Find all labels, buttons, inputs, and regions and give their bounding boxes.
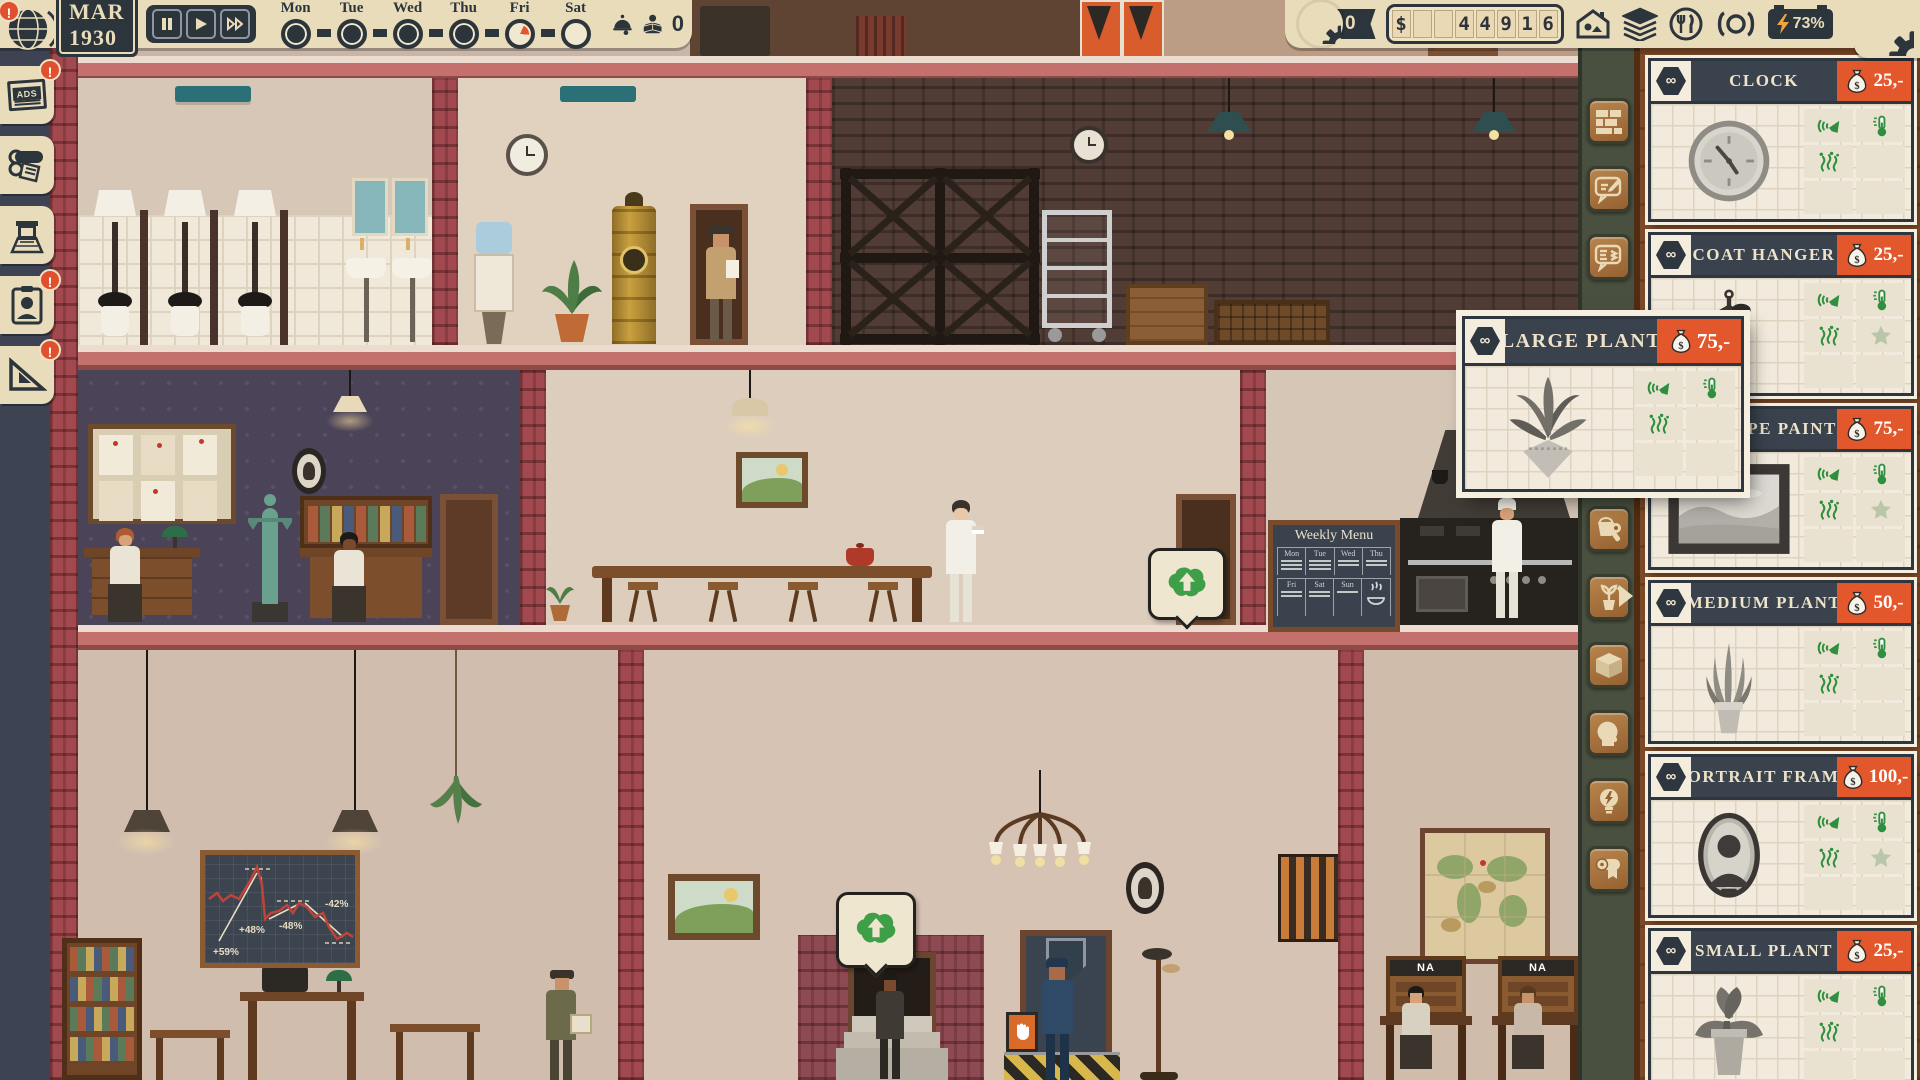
globe-widget[interactable]: ! [2, 2, 54, 54]
temperature-attribute [1856, 109, 1905, 142]
money-cell [1413, 10, 1432, 38]
day-wed[interactable]: Wed [380, 0, 436, 49]
svg-text:-42%: -42% [325, 899, 348, 910]
star-attribute [1856, 145, 1905, 178]
svg-text:+48%: +48% [239, 925, 265, 936]
popup-title: LARGE PLANT [1505, 319, 1657, 363]
left-brick-wall [50, 0, 78, 1080]
money-cell: 4 [1455, 10, 1474, 38]
toolbar-button-storage[interactable] [1587, 642, 1631, 688]
column [432, 78, 458, 345]
sink-leg [364, 278, 369, 342]
build-toolbar [1578, 48, 1634, 1080]
item-price: $ 75,- [1837, 409, 1911, 449]
popup-image-large-plant [1473, 370, 1623, 476]
bathroom-ceiling-lamp[interactable] [175, 86, 251, 102]
column [806, 78, 832, 345]
toilet-unit[interactable] [92, 190, 138, 345]
office-door[interactable] [440, 494, 498, 625]
svg-text:+59%: +59% [213, 947, 239, 958]
justice-statue[interactable] [248, 486, 292, 622]
hand-icon [1014, 1022, 1030, 1042]
pendant-lamp[interactable] [1470, 78, 1518, 140]
stool[interactable] [788, 582, 818, 622]
item-image-medium-plant [1659, 630, 1799, 736]
money-bag-icon: $ [1844, 589, 1870, 617]
temperature-attribute [1856, 457, 1905, 490]
wooden-crate[interactable] [1126, 284, 1208, 345]
coat-stand[interactable] [1136, 948, 1180, 1080]
item-price: $ 50,- [1837, 583, 1911, 623]
smell-attribute [1804, 319, 1853, 352]
noise-attribute [1804, 805, 1853, 838]
day-mon[interactable]: Mon [268, 0, 324, 49]
stool[interactable] [628, 582, 658, 622]
item-popup-large-plant[interactable]: ∞ LARGE PLANT $ 75,- [1462, 316, 1744, 492]
banker-lamp [162, 526, 190, 548]
oval-portrait[interactable] [292, 448, 326, 494]
thought-bubble-skill[interactable] [1148, 548, 1226, 620]
svg-text:$: $ [1678, 341, 1683, 352]
sidebar-tab-printing-press[interactable] [0, 136, 54, 194]
wall-clock[interactable] [506, 134, 548, 176]
oval-portrait[interactable] [1126, 862, 1164, 914]
shop-item-portrait-frame[interactable]: ∞ PORTRAIT FRAME $ 100,- [1648, 754, 1914, 918]
smell-attribute [1634, 407, 1683, 440]
subscription-gear-icon[interactable] [1299, 2, 1343, 46]
money-cell: 6 [1539, 10, 1558, 38]
empty-attribute-slot [1804, 355, 1853, 388]
top-hud-right: 0 $ 4 4 9 1 6 [1285, 0, 1860, 48]
smell-attribute [1804, 145, 1853, 178]
noise-attribute [1804, 457, 1853, 490]
dome-lamp[interactable] [330, 650, 380, 846]
money-cell: 9 [1497, 10, 1516, 38]
floor-separator-1 [78, 345, 1580, 370]
staff-clipboard-icon [10, 285, 44, 325]
empty-attribute-slot [1686, 443, 1735, 476]
bucket-wrench-icon [1594, 514, 1624, 544]
date-display: MAR 1930 [56, 0, 138, 57]
day-progress-dot [337, 19, 367, 49]
item-title: PORTRAIT FRAME [1691, 757, 1837, 797]
money-cell [1434, 10, 1453, 38]
game-screen: Weekly Menu Mon Tue Wed Thu Fri Sat Sun [0, 0, 1920, 1080]
dome-lamp[interactable] [122, 650, 172, 846]
stock-badge: ∞ [1651, 235, 1691, 275]
settings-gear-icon[interactable] [1860, 2, 1914, 56]
phone-operator[interactable] [1398, 986, 1438, 1076]
day-sat[interactable]: Sat [548, 0, 604, 49]
soup-icon [1362, 578, 1391, 616]
noise-attribute [1804, 631, 1853, 664]
playback-controls [146, 5, 256, 43]
svg-text:$: $ [1855, 429, 1860, 440]
toolbar-button-decorations[interactable] [1587, 574, 1631, 620]
empty-attribute-slot [1856, 181, 1905, 214]
chef[interactable] [1488, 498, 1528, 620]
temperature-attribute [1856, 979, 1905, 1012]
toolbar-button-maintenance[interactable] [1587, 506, 1631, 552]
empty-attribute-slot [1804, 877, 1853, 910]
thought-bubble-skill[interactable] [836, 892, 916, 968]
money-bag-icon: $ [1844, 937, 1870, 965]
bricks-icon [1594, 106, 1624, 136]
sidebar-tab-ads[interactable]: ADS ! [0, 66, 54, 124]
star-attribute [1686, 407, 1735, 440]
empty-attribute-slot [1856, 1051, 1905, 1080]
noise-attribute [1804, 109, 1853, 142]
set-square-icon [7, 357, 47, 393]
water-cooler[interactable] [472, 222, 516, 344]
potted-plant[interactable] [540, 256, 604, 346]
toilet-unit[interactable] [232, 190, 278, 345]
warehouse-shelving[interactable] [840, 168, 1040, 345]
stock-badge: ∞ [1651, 931, 1691, 971]
svg-text:$: $ [1855, 81, 1860, 92]
smell-attribute [1804, 493, 1853, 526]
star-attribute [1856, 493, 1905, 526]
noise-attribute [1804, 979, 1853, 1012]
toolbar-button-paper-roll[interactable] [1587, 846, 1631, 892]
poster-right[interactable] [1122, 0, 1164, 58]
week-tracker: Mon Tue Wed Thu Fri Sat [268, 0, 604, 49]
item-price: $ 100,- [1837, 757, 1911, 797]
brain-up-icon [1164, 563, 1210, 605]
toolbar-button-staff[interactable] [1587, 710, 1631, 756]
day-tue[interactable]: Tue [324, 0, 380, 49]
money-bag-icon: $ [1844, 67, 1870, 95]
printing-press-icon [7, 147, 47, 183]
phone-desk-label: NA [1529, 962, 1547, 974]
cork-board[interactable] [88, 424, 236, 524]
decoration-shop-panel: ∞ CLOCK $ 25,- [1634, 48, 1920, 1080]
svg-text:$: $ [1850, 777, 1855, 788]
bathroom-mirror[interactable] [352, 178, 388, 236]
paper-roll-icon [1594, 854, 1624, 884]
day-progress-dot [281, 19, 311, 49]
bookshelf[interactable] [62, 938, 142, 1080]
settings-corner [1854, 0, 1920, 58]
phone-operator[interactable] [1510, 986, 1550, 1076]
noise-attribute [1804, 283, 1853, 316]
hanging-plant[interactable] [428, 650, 484, 880]
alert-badge: ! [39, 269, 61, 291]
poster-left[interactable] [1080, 0, 1122, 58]
lobby-attendant[interactable] [868, 972, 912, 1080]
fast-forward-button[interactable] [220, 9, 250, 39]
stock-badge: ∞ [1651, 61, 1691, 101]
day-progress-dot [449, 19, 479, 49]
popup-price: $ 75,- [1657, 319, 1741, 363]
candle[interactable] [360, 238, 364, 250]
shop-item-clock[interactable]: ∞ CLOCK $ 25,- [1648, 58, 1914, 222]
noise-attribute [1634, 371, 1683, 404]
item-price: $ 25,- [1837, 931, 1911, 971]
toolbar-button-write-article[interactable] [1587, 166, 1631, 212]
shop-item-medium-plant[interactable]: ∞ MEDIUM PLANT $ 50,- [1648, 580, 1914, 744]
temperature-attribute [1686, 371, 1735, 404]
bulb-bolt-icon [1594, 786, 1624, 816]
toolbar-button-article-queue[interactable] [1587, 234, 1631, 280]
money-cell: 1 [1518, 10, 1537, 38]
hanging-pot[interactable] [1432, 470, 1448, 484]
stool[interactable] [708, 582, 738, 622]
money-bag-icon: $ [1668, 327, 1694, 355]
pallet-mesh[interactable] [1214, 300, 1330, 345]
wooden-table[interactable] [390, 1024, 480, 1080]
weekly-menu-row: Fri Sat Sun [1277, 578, 1391, 616]
sink[interactable] [346, 258, 386, 278]
empty-attribute-slot [1856, 703, 1905, 736]
money-cell: 4 [1476, 10, 1495, 38]
smell-attribute [1804, 841, 1853, 874]
smell-attribute [1804, 667, 1853, 700]
delivery-person[interactable] [540, 970, 584, 1080]
alert-badge: ! [39, 339, 61, 361]
smell-attribute [1804, 1015, 1853, 1048]
article-queue-icon [1594, 242, 1624, 272]
column [1240, 370, 1266, 625]
waiter-in-white[interactable] [940, 500, 982, 622]
brain-up-icon [852, 908, 900, 952]
money-bag-icon: $ [1840, 763, 1866, 791]
office-worker[interactable] [106, 528, 150, 622]
column [520, 370, 546, 625]
food-icon[interactable] [1668, 6, 1704, 42]
golden-machine[interactable] [612, 206, 656, 344]
world-map[interactable] [1420, 828, 1550, 964]
sink[interactable] [392, 258, 432, 278]
day-thu[interactable]: Thu [436, 0, 492, 49]
item-price: $ 25,- [1837, 61, 1911, 101]
readers-count: 0 [672, 11, 684, 37]
stock-badge: ∞ [1465, 319, 1505, 363]
landscape-painting[interactable] [736, 452, 808, 508]
stall-partition[interactable] [280, 210, 288, 345]
power-battery[interactable]: 73% [1768, 9, 1833, 39]
reader-icon [641, 6, 664, 42]
head-icon [1594, 718, 1624, 748]
money-cell: $ [1392, 10, 1411, 38]
toilet-unit[interactable] [162, 190, 208, 345]
day-progress-dot [561, 19, 591, 49]
banker-lamp [326, 970, 354, 992]
sink-leg [410, 278, 415, 342]
newsstand-map-icon [6, 216, 48, 254]
top-hud-left: ! MAR 1930 Mon Tue Wed Thu Fri Sat [0, 0, 692, 48]
attic-radiator[interactable] [856, 16, 906, 56]
newspaper-icon: ADS [7, 79, 47, 112]
red-pot[interactable] [846, 548, 874, 566]
weekly-menu-title: Weekly Menu [1277, 528, 1391, 544]
phone-desk-label: NA [1417, 962, 1435, 974]
empty-attribute-slot [1634, 443, 1683, 476]
item-image-portrait-frame [1659, 804, 1799, 910]
stock-badge: ∞ [1651, 757, 1691, 797]
toolbar-button-build-walls[interactable] [1587, 98, 1631, 144]
warehouse-clock[interactable] [1070, 126, 1108, 164]
box-icon [1594, 650, 1624, 680]
rolling-cart[interactable] [1042, 210, 1112, 345]
office-worker[interactable] [330, 532, 374, 622]
svg-text:-48%: -48% [279, 921, 302, 932]
temperature-attribute [1856, 631, 1905, 664]
ads-label: ADS [16, 88, 37, 99]
empty-attribute-slot [1804, 703, 1853, 736]
shop-item-small-plant[interactable]: ∞ SMALL PLANT $ 25,- [1648, 928, 1914, 1080]
lobby-painting[interactable] [668, 874, 760, 940]
svg-text:$: $ [1855, 951, 1860, 962]
star-attribute [1856, 319, 1905, 352]
home-view-icon[interactable] [1574, 7, 1612, 41]
money-display: $ 4 4 9 1 6 [1386, 4, 1564, 44]
svg-text:$: $ [1855, 255, 1860, 266]
wooden-table[interactable] [150, 1030, 230, 1080]
empty-attribute-slot [1856, 355, 1905, 388]
day-progress-dot [393, 19, 423, 49]
play-button[interactable] [186, 9, 216, 39]
machine-eagle [625, 192, 643, 206]
temperature-attribute [1856, 805, 1905, 838]
stall-partition[interactable] [140, 210, 148, 345]
break-room-lamp[interactable] [560, 86, 636, 102]
item-title: COAT HANGER [1691, 235, 1837, 275]
toolbar-button-electricity[interactable] [1587, 778, 1631, 824]
item-image-small-plant [1659, 978, 1799, 1080]
empty-attribute-slot [1804, 1051, 1853, 1080]
stats-chalkboard[interactable]: +59% +48% -48% -42% [200, 850, 360, 968]
man-in-doorway[interactable] [702, 226, 738, 344]
star-attribute [1856, 667, 1905, 700]
bell-icon[interactable] [612, 5, 633, 43]
sidebar-tab-newsstand[interactable] [0, 206, 54, 264]
item-price: $ 25,- [1837, 235, 1911, 275]
sidebar-tab-staff[interactable]: ! [0, 276, 54, 334]
small-plant[interactable] [546, 580, 574, 622]
star-attribute [1856, 841, 1905, 874]
money-bag-icon: $ [1844, 415, 1870, 443]
column [618, 650, 644, 1080]
stall-partition[interactable] [210, 210, 218, 345]
day-progress-dot [505, 19, 535, 49]
empty-attribute-slot [1856, 877, 1905, 910]
star-attribute [1856, 1015, 1905, 1048]
security-guard[interactable] [1034, 958, 1080, 1080]
alert-badge: ! [39, 59, 61, 81]
empty-attribute-slot [1856, 529, 1905, 562]
sidebar-tab-construction[interactable]: ! [0, 346, 54, 404]
item-image-clock [1659, 108, 1799, 214]
attic-machine[interactable] [700, 6, 770, 56]
bathroom-mirror[interactable] [392, 178, 428, 236]
svg-text:$: $ [1855, 603, 1860, 614]
item-title: CLOCK [1691, 61, 1837, 101]
empty-attribute-slot [1804, 529, 1853, 562]
column [1338, 650, 1364, 1080]
meeting-hanging-lamp[interactable] [728, 370, 772, 426]
floors-layers-icon[interactable] [1622, 7, 1658, 41]
weekly-menu-board[interactable]: Weekly Menu Mon Tue Wed Thu Fri Sat Sun [1268, 520, 1400, 632]
stock-badge: ∞ [1651, 583, 1691, 623]
day-fri[interactable]: Fri [492, 0, 548, 49]
candle[interactable] [406, 238, 410, 250]
temperature-attribute [1856, 283, 1905, 316]
stool[interactable] [868, 582, 898, 622]
lightning-icon [1776, 14, 1790, 34]
article-pen-icon [1594, 174, 1624, 204]
weekly-menu-row: Mon Tue Wed Thu [1277, 547, 1391, 575]
pause-button[interactable] [152, 9, 182, 39]
empty-attribute-slot [1804, 181, 1853, 214]
money-bag-icon: $ [1844, 241, 1870, 269]
chandelier[interactable] [985, 770, 1095, 882]
item-title: MEDIUM PLANT [1691, 583, 1837, 623]
pendant-lamp[interactable] [1205, 78, 1253, 140]
visibility-eye-icon[interactable] [1714, 11, 1758, 37]
item-title: SMALL PLANT [1691, 931, 1837, 971]
office-hanging-lamp[interactable] [330, 370, 370, 422]
